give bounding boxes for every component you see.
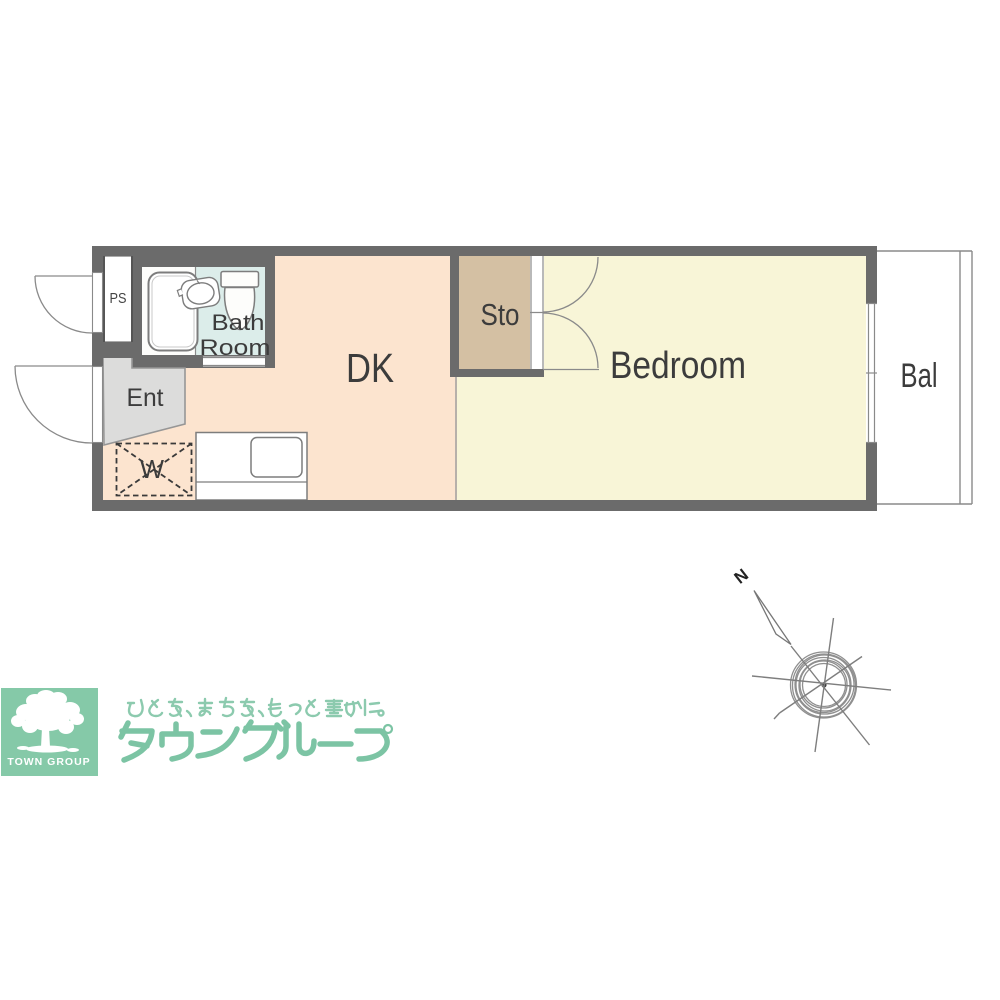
svg-text:Room: Room (200, 335, 271, 360)
svg-text:Bedroom: Bedroom (610, 345, 746, 387)
svg-text:DK: DK (346, 345, 394, 391)
svg-text:Ent: Ent (127, 384, 164, 412)
svg-text:TOWN GROUP: TOWN GROUP (7, 756, 90, 768)
svg-text:Bath: Bath (212, 310, 265, 335)
svg-text:Sto: Sto (481, 297, 520, 332)
svg-text:PS: PS (110, 290, 127, 307)
svg-text:Bal: Bal (901, 357, 938, 395)
svg-text:W: W (140, 454, 164, 484)
